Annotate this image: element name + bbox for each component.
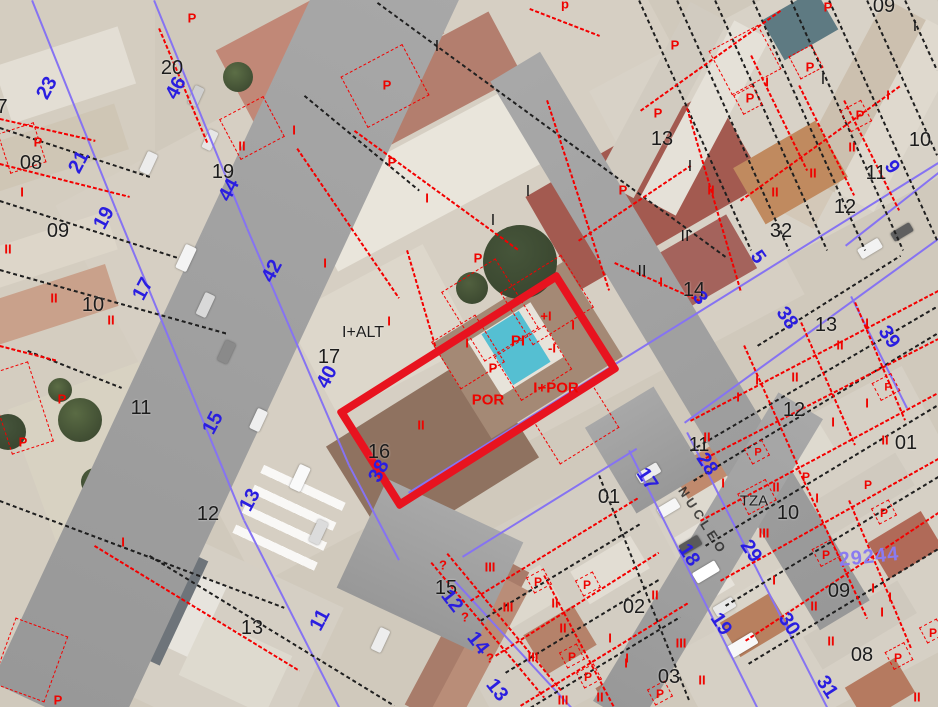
use-label: III (558, 694, 569, 707)
use-label: II (707, 184, 714, 197)
use-label: II (417, 419, 424, 432)
use-label: I (871, 582, 875, 595)
use-label: P (383, 79, 392, 92)
use-label: I+POR (533, 381, 578, 396)
parcel-number-label: 03 (658, 667, 680, 687)
use-label: I (831, 416, 835, 429)
use-label: P (54, 694, 63, 707)
parcel-number-label: 12 (783, 400, 805, 420)
use-label-dark: I (491, 213, 495, 229)
parcel-number-label: 10 (909, 130, 931, 150)
use-label: P (864, 479, 872, 491)
use-label: P (754, 448, 761, 459)
use-label: P (856, 109, 865, 122)
use-label: P (929, 627, 937, 639)
use-label: P (584, 671, 592, 683)
use-label-dark: II (681, 229, 690, 245)
use-label: II (107, 314, 114, 327)
use-label-dark: I (913, 19, 917, 35)
use-label: P (746, 92, 755, 105)
use-label: P (188, 12, 197, 25)
use-label: III (485, 561, 496, 574)
use-label-dark: I (688, 159, 692, 175)
use-label: ? (486, 652, 494, 665)
use-label-dark: I (435, 39, 439, 55)
use-label: P (34, 136, 43, 149)
use-label: II (827, 635, 834, 648)
use-label: III (528, 651, 539, 664)
use-label: P (568, 651, 576, 663)
parcel-number-label: 13 (241, 618, 263, 638)
use-label: +I (540, 310, 551, 323)
use-label: P (656, 688, 664, 700)
parcel-number-label: 12 (834, 197, 856, 217)
use-label: III (676, 637, 687, 650)
use-label: P (534, 576, 542, 588)
use-label: P (806, 61, 815, 74)
parcel-number-label: 10 (82, 295, 104, 315)
parcel-number-label: 12 (197, 504, 219, 524)
use-label: I (425, 192, 429, 205)
use-label: P (894, 652, 902, 664)
use-label: II (809, 167, 816, 180)
use-label: P (822, 549, 830, 561)
use-label: P (880, 507, 888, 519)
use-label: II (881, 434, 888, 447)
use-label: -I (548, 342, 556, 355)
tree (223, 62, 253, 92)
use-label: III (503, 601, 514, 614)
use-label: I (387, 315, 391, 328)
use-label: P (583, 579, 591, 591)
use-label: PI (511, 334, 525, 349)
use-label: P (388, 156, 397, 169)
use-label: I (880, 606, 884, 619)
use-label: I (772, 574, 776, 587)
use-label: II (559, 622, 566, 635)
parcel-number-label: 13 (815, 315, 837, 335)
use-label: p (561, 0, 569, 11)
use-label: P (824, 1, 833, 14)
use-label: P (884, 383, 891, 394)
use-label: II (698, 674, 705, 687)
use-label: II (848, 141, 855, 154)
parcel-number-label: 09 (47, 221, 69, 241)
use-label: P (58, 393, 67, 406)
use-label: II (771, 186, 778, 199)
parcel-number-label: 08 (851, 645, 873, 665)
use-label: II (4, 243, 11, 256)
use-label: P (489, 362, 498, 375)
car (370, 627, 390, 653)
parcel-number-label: 13 (651, 129, 673, 149)
use-label: II (810, 600, 817, 613)
use-label: I (323, 257, 327, 270)
parcel-number-label: 10 (777, 503, 799, 523)
use-label: II (772, 481, 779, 494)
use-label: I (292, 124, 296, 137)
use-label: ? (439, 559, 447, 572)
cadastral-map-canvas[interactable]: 7080910111213201917161513091011123214131… (0, 0, 938, 707)
use-label: II (651, 589, 658, 602)
parcel-number-label: 01 (598, 487, 620, 507)
use-label: I (608, 632, 612, 645)
use-label: I (765, 76, 769, 89)
parcel-number-label: 11 (131, 398, 152, 418)
use-label: II (50, 292, 57, 305)
use-label-dark: I (821, 72, 825, 88)
use-label: P (654, 107, 663, 120)
use-label: P (802, 471, 810, 483)
use-label: I (736, 391, 740, 404)
parcel-number-label: 32 (770, 221, 792, 241)
parcel-number-label: I+ALT (342, 325, 384, 341)
use-label-dark: I (526, 184, 530, 200)
use-label: II (836, 339, 843, 352)
use-label: I (865, 397, 869, 410)
parcel-number-label: TZA (740, 494, 768, 509)
use-label: I (755, 374, 759, 387)
use-label: I (865, 317, 869, 330)
parcel-number-label: 02 (623, 597, 645, 617)
use-label: I (721, 477, 725, 490)
parcel-number-label: 7 (0, 97, 8, 117)
use-label: I (571, 319, 575, 332)
use-label: I (624, 657, 628, 670)
use-label: I (886, 89, 890, 102)
use-label: II (238, 140, 245, 153)
use-label: I (888, 591, 892, 604)
parcel-number-label: 09 (873, 0, 895, 16)
use-label: I (121, 536, 125, 549)
use-label: II (913, 691, 920, 704)
use-label: I (815, 492, 819, 505)
use-label: POR (472, 393, 505, 408)
parcel-number-label: 01 (895, 433, 917, 453)
use-label: P (19, 436, 28, 449)
use-label: II (551, 597, 558, 610)
use-label: II (703, 431, 710, 444)
use-label: I (465, 337, 469, 350)
use-label: II (596, 691, 603, 704)
use-label: ? (461, 611, 469, 624)
use-label: I (659, 276, 663, 289)
use-label: III (759, 527, 770, 540)
use-label: I (20, 186, 24, 199)
use-label: P (474, 252, 483, 265)
use-label: P (619, 184, 628, 197)
use-label-dark: II (638, 264, 647, 280)
use-label: II (791, 371, 798, 384)
use-label: P (671, 39, 680, 52)
parcel-number-label: 08 (20, 153, 42, 173)
parcel-number-label: 09 (828, 581, 850, 601)
